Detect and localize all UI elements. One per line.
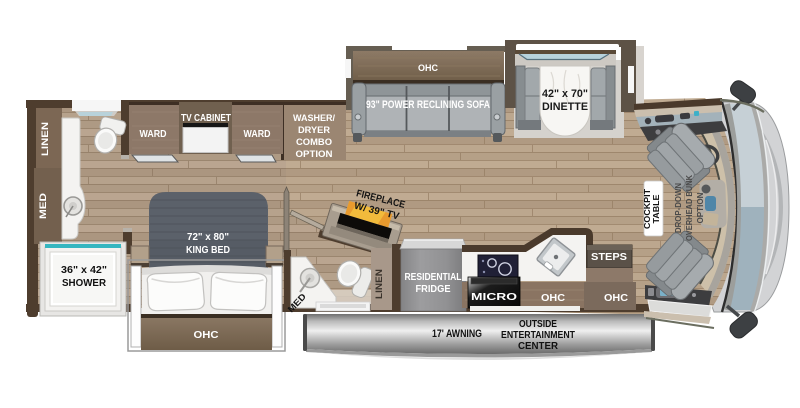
svg-text:72" x 80": 72" x 80"	[187, 232, 229, 243]
svg-text:COMBO: COMBO	[296, 137, 332, 147]
svg-text:93" POWER RECLINING SOFA: 93" POWER RECLINING SOFA	[366, 99, 490, 111]
svg-text:OVERHEAD BUNK: OVERHEAD BUNK	[684, 174, 694, 241]
svg-text:OHC: OHC	[604, 293, 628, 304]
svg-text:WARD: WARD	[140, 129, 167, 140]
svg-text:CENTER: CENTER	[518, 341, 559, 352]
svg-text:OHC: OHC	[541, 293, 565, 304]
svg-text:17' AWNING: 17' AWNING	[432, 328, 482, 340]
svg-text:DRYER: DRYER	[298, 125, 331, 135]
svg-text:WARD: WARD	[244, 129, 271, 140]
svg-text:TABLE: TABLE	[652, 194, 661, 224]
svg-text:OPTION: OPTION	[296, 149, 333, 159]
svg-text:STEPS: STEPS	[591, 252, 627, 263]
svg-text:DINETTE: DINETTE	[542, 101, 588, 113]
svg-text:COCKPIT: COCKPIT	[643, 189, 652, 229]
svg-text:SHOWER: SHOWER	[62, 278, 107, 289]
svg-text:ENTERTAINMENT: ENTERTAINMENT	[501, 330, 575, 341]
svg-text:OHC: OHC	[194, 330, 219, 341]
svg-text:MED: MED	[38, 193, 49, 219]
svg-text:TV CABINET: TV CABINET	[181, 113, 231, 124]
svg-text:WASHER/: WASHER/	[293, 113, 335, 123]
svg-text:MICRO: MICRO	[471, 291, 517, 303]
svg-text:42" x 70": 42" x 70"	[542, 88, 588, 100]
svg-text:OUTSIDE: OUTSIDE	[519, 319, 557, 330]
svg-text:FRIDGE: FRIDGE	[416, 284, 451, 295]
svg-text:36" x 42": 36" x 42"	[61, 265, 107, 276]
svg-text:OHC: OHC	[418, 63, 438, 74]
svg-text:DROP-DOWN: DROP-DOWN	[673, 183, 683, 233]
svg-text:LINEN: LINEN	[374, 269, 384, 299]
svg-text:RESIDENTIAL: RESIDENTIAL	[405, 272, 462, 283]
svg-text:KING BED: KING BED	[186, 245, 230, 256]
svg-text:OPTION: OPTION	[695, 193, 705, 224]
svg-text:LINEN: LINEN	[40, 122, 51, 156]
